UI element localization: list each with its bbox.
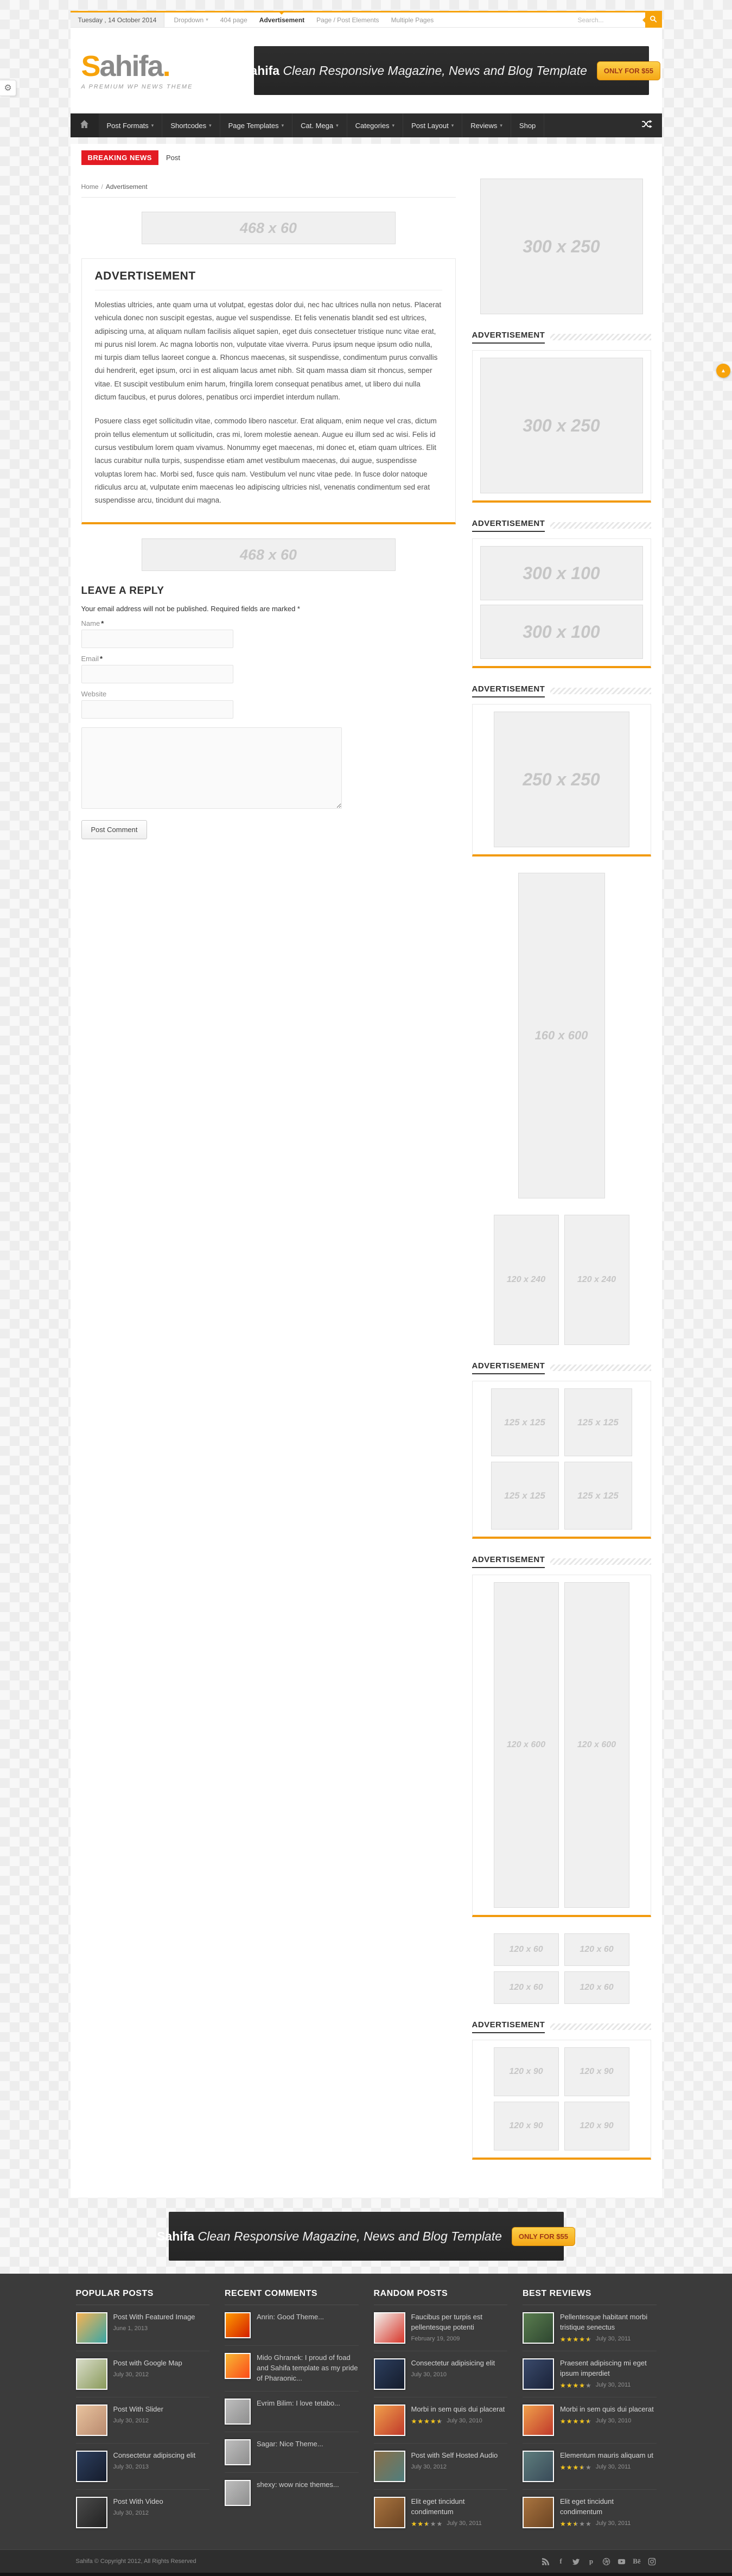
breaking-news-label: BREAKING NEWS [81, 150, 158, 165]
topbar-item-404-page[interactable]: 404 page [214, 12, 253, 27]
post-info: Consectetur adipisicing elitJuly 30, 201… [411, 2358, 495, 2380]
comment-item: shexy: wow nice themes... [225, 2473, 359, 2513]
post-title-link[interactable]: Pellentesque habitant morbi tristique se… [560, 2312, 657, 2333]
post-info: Evrim Bilim: I love tetabo... [257, 2399, 340, 2409]
banner-price-button[interactable]: ONLY FOR $55 [597, 61, 660, 80]
post-meta: February 19, 2009 [411, 2335, 508, 2344]
nav-menu: Post Formats▾Shortcodes▾Page Templates▾C… [99, 113, 632, 137]
post-date: July 30, 2012 [113, 2509, 149, 2518]
site-header: Sahifa. A PREMIUM WP NEWS THEME Sahifa C… [71, 28, 662, 113]
post-info: Sagar: Nice Theme... [257, 2439, 323, 2450]
ad-placeholder-125x125: 125 x 125 [491, 1388, 559, 1456]
post-title-link[interactable]: Elit eget tincidunt condimentum [560, 2497, 657, 2517]
logo-s: S [81, 50, 100, 83]
post-title-link[interactable]: Post With Video [113, 2497, 163, 2507]
post-item: Praesent adipiscing mi eget ipsum imperd… [523, 2351, 657, 2397]
nav-item-shop[interactable]: Shop [511, 113, 544, 137]
footer-widget-popular-posts: POPULAR POSTS Post With Featured ImageJu… [76, 2289, 210, 2535]
article-paragraph: Molestias ultricies, ante quam urna ut v… [95, 299, 442, 404]
post-item: Elit eget tincidunt condimentum★★★★★★★★★… [374, 2490, 508, 2535]
post-info: Morbi in sem quis dui placerat★★★★★★★★★★… [411, 2404, 505, 2426]
post-date: July 30, 2012 [411, 2463, 447, 2472]
comment-form: LEAVE A REPLY Your email address will no… [81, 585, 456, 839]
post-item: Pellentesque habitant morbi tristique se… [523, 2305, 657, 2351]
avatar[interactable] [225, 2480, 251, 2506]
post-meta: July 30, 2012 [113, 2509, 163, 2518]
top-bar: Tuesday , 14 October 2014 Dropdown▾404 p… [71, 11, 662, 28]
breadcrumb: Home/Advertisement [81, 179, 456, 198]
footer-banner-strip: Sahifa Clean Responsive Magazine, News a… [71, 2198, 662, 2274]
widget-title: ADVERTISEMENT [472, 1361, 651, 1374]
comment-item: Sagar: Nice Theme... [225, 2432, 359, 2473]
banner-brand: Sahifa [242, 64, 279, 78]
post-item: Consectetur adipisicing elitJuly 30, 201… [374, 2351, 508, 2397]
post-item: Post with Self Hosted AudioJuly 30, 2012 [374, 2444, 508, 2490]
ad-placeholder-300x250: 300 x 250 [480, 358, 643, 493]
footer-widget-title: BEST REVIEWS [523, 2289, 657, 2305]
post-title-link[interactable]: Morbi in sem quis dui placerat [560, 2404, 654, 2415]
post-title-link[interactable]: Morbi in sem quis dui placerat [411, 2404, 505, 2415]
avatar[interactable] [225, 2439, 251, 2465]
footer-widget-random-posts: RANDOM POSTS Faucibus per turpis est pel… [374, 2289, 508, 2535]
star-rating: ★★★★★★★★★★ [560, 2336, 592, 2343]
chevron-down-icon: ▾ [151, 123, 154, 129]
widget-title: ADVERTISEMENT [472, 331, 651, 344]
post-meta: ★★★★★★★★★★July 30, 2011 [411, 2520, 508, 2528]
breadcrumb-current: Advertisement [106, 183, 148, 191]
widget-title: ADVERTISEMENT [472, 1555, 651, 1568]
search-input[interactable] [575, 14, 640, 26]
post-thumbnail[interactable] [374, 2312, 405, 2344]
sidebar-ad-widget: ADVERTISEMENT120 x 90120 x 90120 x 90120… [472, 2020, 651, 2160]
search-area [575, 12, 662, 27]
star-rating-fill: ★★★★★ [560, 2382, 585, 2389]
youtube-icon[interactable] [618, 2557, 626, 2566]
post-date: July 30, 2011 [447, 2520, 482, 2528]
post-thumbnail[interactable] [76, 2451, 107, 2482]
back-to-top-button[interactable]: ▲ [716, 364, 730, 378]
post-meta: ★★★★★★★★★★July 30, 2010 [411, 2417, 505, 2426]
ad-group: 300 x 250 [472, 350, 651, 503]
post-item: Faucibus per turpis est pellentesque pot… [374, 2305, 508, 2351]
home-icon [80, 119, 89, 131]
avatar[interactable] [225, 2399, 251, 2425]
post-meta: ★★★★★★★★★★July 30, 2010 [560, 2417, 654, 2426]
nav-item-cat-mega[interactable]: Cat. Mega▾ [292, 113, 347, 137]
ad-group: 300 x 100300 x 100 [472, 538, 651, 668]
site-tagline: A PREMIUM WP NEWS THEME [81, 84, 193, 90]
widget-title: ADVERTISEMENT [472, 519, 651, 532]
post-date: July 30, 2011 [596, 2520, 631, 2528]
post-date: July 30, 2011 [596, 2381, 631, 2390]
post-info: Faucibus per turpis est pellentesque pot… [411, 2312, 508, 2344]
ad-group: 120 x 90120 x 90120 x 90120 x 90 [472, 2040, 651, 2160]
nav-item-reviews[interactable]: Reviews▾ [462, 113, 511, 137]
star-rating: ★★★★★★★★★★ [560, 2464, 592, 2471]
rss-icon[interactable] [542, 2557, 550, 2566]
sidebar-ad-widget: ADVERTISEMENT125 x 125125 x 125125 x 125… [472, 1361, 651, 1539]
name-label: Name* [81, 619, 456, 627]
footer-widget-best-reviews: BEST REVIEWS Pellentesque habitant morbi… [523, 2289, 657, 2535]
twitter-icon[interactable] [572, 2557, 581, 2566]
ad-placeholder-120x240: 120 x 240 [494, 1215, 559, 1345]
pinterest-icon[interactable]: p [587, 2557, 596, 2566]
post-info: Post With SliderJuly 30, 2012 [113, 2404, 163, 2426]
bottom-ad-slot: 468 x 60 [81, 538, 456, 571]
logo-rest: ahifa [100, 50, 163, 83]
banner-price-button[interactable]: ONLY FOR $55 [512, 2227, 575, 2246]
content-area: BREAKING NEWS Post Home/Advertisement 46… [71, 144, 662, 2198]
post-thumbnail[interactable] [76, 2358, 107, 2390]
website-label: Website [81, 690, 456, 698]
post-info: Consectetur adipiscing elitJuly 30, 2013 [113, 2451, 196, 2472]
behance-icon[interactable]: Bē [633, 2557, 641, 2566]
gear-icon: ⚙ [4, 83, 11, 93]
post-meta: July 30, 2012 [113, 2417, 163, 2426]
widget-title-stripes [550, 522, 651, 529]
nav-item-shortcodes[interactable]: Shortcodes▾ [162, 113, 220, 137]
avatar[interactable] [225, 2312, 251, 2338]
star-rating-fill: ★★★★★ [560, 2521, 576, 2527]
post-date: July 30, 2013 [113, 2463, 149, 2472]
post-info: Elit eget tincidunt condimentum★★★★★★★★★… [560, 2497, 657, 2528]
website-field[interactable] [81, 700, 233, 719]
breadcrumb-home-link[interactable]: Home [81, 183, 99, 191]
post-item: Post With SliderJuly 30, 2012 [76, 2397, 210, 2444]
post-meta: June 1, 2013 [113, 2325, 195, 2333]
post-thumbnail[interactable] [523, 2358, 554, 2390]
star-rating: ★★★★★★★★★★ [560, 2521, 592, 2527]
comment-text[interactable]: shexy: wow nice themes... [257, 2480, 339, 2489]
star-rating: ★★★★★★★★★★ [560, 2418, 592, 2425]
post-thumbnail[interactable] [523, 2497, 554, 2528]
post-meta: ★★★★★★★★★★July 30, 2011 [560, 2335, 657, 2344]
ad-placeholder-120x60: 120 x 60 [494, 1933, 559, 1966]
post-title-link[interactable]: Consectetur adipiscing elit [113, 2451, 196, 2461]
post-comment-button[interactable]: Post Comment [81, 820, 148, 839]
post-meta: July 30, 2012 [113, 2371, 182, 2380]
widget-title-stripes [550, 334, 651, 340]
ad-placeholder-120x60: 120 x 60 [564, 1971, 629, 2004]
footer-banner-ad[interactable]: Sahifa Clean Responsive Magazine, News a… [169, 2212, 564, 2261]
article-paragraph: Posuere class eget sollicitudin vitae, c… [95, 415, 442, 507]
ad-placeholder-120x90: 120 x 90 [494, 2102, 559, 2150]
nav-item-categories[interactable]: Categories▾ [347, 113, 403, 137]
topbar-item-page-post-elements[interactable]: Page / Post Elements [310, 12, 385, 27]
nav-item-post-formats[interactable]: Post Formats▾ [99, 113, 163, 137]
facebook-icon[interactable]: f [557, 2557, 565, 2566]
post-item: Elementum mauris aliquam ut★★★★★★★★★★Jul… [523, 2444, 657, 2490]
site-logo[interactable]: Sahifa. A PREMIUM WP NEWS THEME [81, 52, 193, 90]
post-thumbnail[interactable] [523, 2404, 554, 2436]
post-thumbnail[interactable] [76, 2312, 107, 2344]
post-title-link[interactable]: Post with Google Map [113, 2358, 182, 2369]
widget-title-stripes [550, 2023, 651, 2030]
home-button[interactable] [71, 113, 99, 137]
post-info: Anrin: Good Theme... [257, 2312, 324, 2323]
post-info: Post with Self Hosted AudioJuly 30, 2012 [411, 2451, 498, 2472]
post-meta: July 30, 2013 [113, 2463, 196, 2472]
post-thumbnail[interactable] [374, 2404, 405, 2436]
post-date: July 30, 2011 [596, 2335, 631, 2344]
ad-placeholder-300x100: 300 x 100 [480, 546, 643, 600]
ad-placeholder-120x60: 120 x 60 [494, 1971, 559, 2004]
footer-widget-title: RANDOM POSTS [374, 2289, 508, 2305]
ad-placeholder-125x125: 125 x 125 [491, 1462, 559, 1530]
post-meta: July 30, 2010 [411, 2371, 495, 2380]
chevron-down-icon: ▾ [282, 123, 284, 129]
widget-title-text: ADVERTISEMENT [472, 684, 545, 697]
star-rating: ★★★★★★★★★★ [411, 2521, 443, 2527]
search-icon [650, 15, 657, 24]
breaking-news-item[interactable]: Post [166, 154, 180, 162]
reply-title: LEAVE A REPLY [81, 585, 456, 597]
ad-placeholder-120x600: 120 x 600 [564, 1582, 629, 1908]
post-item: Morbi in sem quis dui placerat★★★★★★★★★★… [523, 2397, 657, 2444]
widget-title-text: ADVERTISEMENT [472, 1361, 545, 1374]
post-thumbnail[interactable] [523, 2451, 554, 2482]
post-title-link[interactable]: Faucibus per turpis est pellentesque pot… [411, 2312, 508, 2333]
site-footer: POPULAR POSTS Post With Featured ImageJu… [0, 2274, 732, 2576]
ad-placeholder-300x250: 300 x 250 [480, 179, 643, 314]
random-post-button[interactable] [632, 113, 662, 137]
comment-text[interactable]: Evrim Bilim: I love tetabo... [257, 2399, 340, 2407]
comment-text[interactable]: Sagar: Nice Theme... [257, 2440, 323, 2448]
chevron-down-icon: ▾ [500, 123, 502, 129]
chevron-down-icon: ▾ [209, 123, 212, 129]
social-icons: fpBē [542, 2557, 657, 2566]
widget-title: ADVERTISEMENT [472, 684, 651, 697]
post-date: February 19, 2009 [411, 2335, 460, 2344]
post-item: Consectetur adipiscing elitJuly 30, 2013 [76, 2444, 210, 2490]
widget-title-text: ADVERTISEMENT [472, 2020, 545, 2033]
post-thumbnail[interactable] [374, 2358, 405, 2390]
sidebar-ad-widget: ADVERTISEMENT300 x 100300 x 100 [472, 519, 651, 668]
breadcrumb-separator: / [101, 183, 103, 191]
chevron-down-icon: ▾ [451, 123, 454, 129]
post-title-link[interactable]: Elementum mauris aliquam ut [560, 2451, 653, 2461]
post-info: Post With VideoJuly 30, 2012 [113, 2497, 163, 2518]
post-info: Praesent adipiscing mi eget ipsum imperd… [560, 2358, 657, 2390]
ad-placeholder-125x125: 125 x 125 [564, 1462, 632, 1530]
footer-widget-recent-comments: RECENT COMMENTS Anrin: Good Theme...Mido… [225, 2289, 359, 2535]
comment-item: Anrin: Good Theme... [225, 2305, 359, 2346]
ad-placeholder-120x90: 120 x 90 [564, 2047, 629, 2096]
star-rating-fill: ★★★★★ [560, 2418, 589, 2425]
topbar-item-multiple-pages[interactable]: Multiple Pages [385, 12, 440, 27]
ad-placeholder-120x90: 120 x 90 [494, 2047, 559, 2096]
sidebar-ad-widget: 120 x 60120 x 60120 x 60120 x 60 [472, 1933, 651, 2004]
post-title-link[interactable]: Elit eget tincidunt condimentum [411, 2497, 508, 2517]
widget-title-stripes [550, 688, 651, 694]
post-date: July 30, 2012 [113, 2371, 149, 2380]
post-item: Post with Google MapJuly 30, 2012 [76, 2351, 210, 2397]
widget-title: ADVERTISEMENT [472, 2020, 651, 2033]
page-container: Tuesday , 14 October 2014 Dropdown▾404 p… [71, 11, 662, 2274]
ad-placeholder-250x250: 250 x 250 [494, 712, 629, 847]
post-title-link[interactable]: Post With Slider [113, 2404, 163, 2415]
ad-group: 300 x 250 [472, 179, 651, 314]
comment-text[interactable]: Anrin: Good Theme... [257, 2313, 324, 2321]
name-field[interactable] [81, 630, 233, 648]
email-label: Email* [81, 655, 456, 663]
comment-textarea[interactable] [81, 727, 342, 809]
required-mark: * [101, 619, 104, 627]
ad-group: 120 x 600120 x 600 [472, 1575, 651, 1917]
post-info: Post With Featured ImageJune 1, 2013 [113, 2312, 195, 2333]
sidebar-ad-widget: 300 x 250 [472, 179, 651, 314]
article: ADVERTISEMENT Molestias ultricies, ante … [81, 258, 456, 524]
post-meta: ★★★★★★★★★★July 30, 2011 [560, 2520, 657, 2528]
widget-title-text: ADVERTISEMENT [472, 331, 545, 344]
reply-note: Your email address will not be published… [81, 605, 456, 613]
post-date: July 30, 2010 [447, 2417, 482, 2426]
ad-placeholder-468x60: 468 x 60 [142, 212, 396, 244]
nav-item-post-layout[interactable]: Post Layout▾ [403, 113, 462, 137]
ad-group: 120 x 60120 x 60120 x 60120 x 60 [472, 1933, 651, 2004]
ad-group: 160 x 600 [472, 873, 651, 1198]
widget-title-stripes [550, 1558, 651, 1565]
date-display: Tuesday , 14 October 2014 [71, 12, 165, 27]
post-item: Elit eget tincidunt condimentum★★★★★★★★★… [523, 2490, 657, 2535]
star-rating-fill: ★★★★★ [560, 2336, 589, 2343]
post-date: July 30, 2011 [596, 2463, 631, 2472]
banner-text: Clean Responsive Magazine, News and Blog… [283, 64, 587, 78]
post-meta: July 30, 2012 [411, 2463, 498, 2472]
comment-item: Evrim Bilim: I love tetabo... [225, 2391, 359, 2432]
shuffle-icon [642, 120, 652, 131]
widget-title-text: ADVERTISEMENT [472, 1555, 545, 1568]
ad-group: 120 x 240120 x 240 [472, 1215, 651, 1345]
main-navigation: Post Formats▾Shortcodes▾Page Templates▾C… [71, 113, 662, 137]
settings-panel-toggle[interactable]: ⚙ [0, 80, 16, 96]
post-thumbnail[interactable] [76, 2404, 107, 2436]
comment-text[interactable]: Mido Ghranek: I proud of foad and Sahifa… [257, 2353, 358, 2382]
header-banner-ad[interactable]: Sahifa Clean Responsive Magazine, News a… [254, 46, 649, 95]
post-info: Elit eget tincidunt condimentum★★★★★★★★★… [411, 2497, 508, 2528]
post-thumbnail[interactable] [76, 2497, 107, 2528]
ad-placeholder-468x60: 468 x 60 [142, 538, 396, 571]
instagram-icon[interactable] [648, 2557, 657, 2566]
banner-brand: Sahifa [157, 2229, 194, 2243]
sidebar: 300 x 250ADVERTISEMENT300 x 250ADVERTISE… [472, 179, 651, 2176]
post-info: Morbi in sem quis dui placerat★★★★★★★★★★… [560, 2404, 654, 2426]
topbar-item-advertisement[interactable]: Advertisement [253, 12, 310, 27]
post-thumbnail[interactable] [374, 2497, 405, 2528]
post-thumbnail[interactable] [523, 2312, 554, 2344]
post-thumbnail[interactable] [374, 2451, 405, 2482]
article-title: ADVERTISEMENT [95, 270, 442, 290]
post-meta: ★★★★★★★★★★July 30, 2011 [560, 2381, 657, 2390]
post-item: Post With Featured ImageJune 1, 2013 [76, 2305, 210, 2351]
footer-widget-title: POPULAR POSTS [76, 2289, 210, 2305]
ad-group: 250 x 250 [472, 704, 651, 856]
ad-placeholder-125x125: 125 x 125 [564, 1388, 632, 1456]
chevron-down-icon: ▾ [392, 123, 395, 129]
chevron-down-icon: ▾ [206, 17, 208, 23]
sidebar-ad-widget: ADVERTISEMENT300 x 250 [472, 331, 651, 503]
star-rating-fill: ★★★★★ [411, 2521, 427, 2527]
sidebar-ad-widget: 160 x 600 [472, 873, 651, 1198]
logo-dot: . [163, 50, 170, 83]
main-column: Home/Advertisement 468 x 60 ADVERTISEMEN… [81, 179, 456, 839]
footer-bottom-bar: Sahifa © Copyright 2012, All Rights Rese… [0, 2549, 732, 2576]
widget-title-stripes [550, 1365, 651, 1371]
post-title-link[interactable]: Praesent adipiscing mi eget ipsum imperd… [560, 2358, 657, 2379]
required-mark: * [100, 655, 103, 663]
post-info: Elementum mauris aliquam ut★★★★★★★★★★Jul… [560, 2451, 653, 2472]
chevron-down-icon: ▾ [336, 123, 339, 129]
post-date: July 30, 2012 [113, 2417, 149, 2426]
post-date: July 30, 2010 [411, 2371, 447, 2380]
star-rating: ★★★★★★★★★★ [560, 2382, 592, 2389]
sidebar-ad-widget: ADVERTISEMENT120 x 600120 x 600 [472, 1555, 651, 1917]
post-title-link[interactable]: Post with Self Hosted Audio [411, 2451, 498, 2461]
post-title-link[interactable]: Post With Featured Image [113, 2312, 195, 2323]
search-button[interactable] [645, 12, 662, 28]
post-info: Mido Ghranek: I proud of foad and Sahifa… [257, 2353, 359, 2384]
ad-placeholder-160x600: 160 x 600 [518, 873, 605, 1198]
topbar-menu: Dropdown▾404 pageAdvertisementPage / Pos… [164, 12, 574, 27]
post-info: shexy: wow nice themes... [257, 2480, 339, 2490]
star-rating: ★★★★★★★★★★ [411, 2418, 443, 2425]
ad-placeholder-120x60: 120 x 60 [564, 1933, 629, 1966]
nav-item-page-templates[interactable]: Page Templates▾ [220, 113, 293, 137]
ad-placeholder-120x240: 120 x 240 [564, 1215, 629, 1345]
avatar[interactable] [225, 2353, 251, 2379]
ad-placeholder-120x90: 120 x 90 [564, 2102, 629, 2150]
arrow-up-icon: ▲ [721, 368, 726, 374]
post-item: Morbi in sem quis dui placerat★★★★★★★★★★… [374, 2397, 508, 2444]
footer-widget-title: RECENT COMMENTS [225, 2289, 359, 2305]
post-date: July 30, 2010 [596, 2417, 631, 2426]
ad-placeholder-300x100: 300 x 100 [480, 605, 643, 659]
sidebar-ad-widget: 120 x 240120 x 240 [472, 1215, 651, 1345]
banner-text: Clean Responsive Magazine, News and Blog… [198, 2229, 501, 2243]
ad-placeholder-120x600: 120 x 600 [494, 1582, 559, 1908]
post-info: Post with Google MapJuly 30, 2012 [113, 2358, 182, 2380]
top-ad-slot: 468 x 60 [81, 212, 456, 244]
ad-group: 125 x 125125 x 125125 x 125125 x 125 [472, 1381, 651, 1539]
sidebar-ad-widget: ADVERTISEMENT250 x 250 [472, 684, 651, 856]
star-rating-fill: ★★★★★ [411, 2418, 440, 2425]
post-date: June 1, 2013 [113, 2325, 148, 2333]
post-meta: ★★★★★★★★★★July 30, 2011 [560, 2463, 653, 2472]
post-title-link[interactable]: Consectetur adipisicing elit [411, 2358, 495, 2369]
topbar-item-dropdown[interactable]: Dropdown▾ [168, 12, 214, 27]
star-rating-fill: ★★★★★ [560, 2464, 582, 2471]
breaking-news-bar: BREAKING NEWS Post [81, 144, 651, 171]
post-info: Pellentesque habitant morbi tristique se… [560, 2312, 657, 2344]
comment-item: Mido Ghranek: I proud of foad and Sahifa… [225, 2346, 359, 2391]
widget-title-text: ADVERTISEMENT [472, 519, 545, 532]
search-notch [640, 17, 645, 23]
email-field[interactable] [81, 665, 233, 683]
post-item: Post With VideoJuly 30, 2012 [76, 2490, 210, 2535]
copyright-text: Sahifa © Copyright 2012, All Rights Rese… [76, 2558, 196, 2565]
dribbble-icon[interactable] [602, 2557, 611, 2566]
